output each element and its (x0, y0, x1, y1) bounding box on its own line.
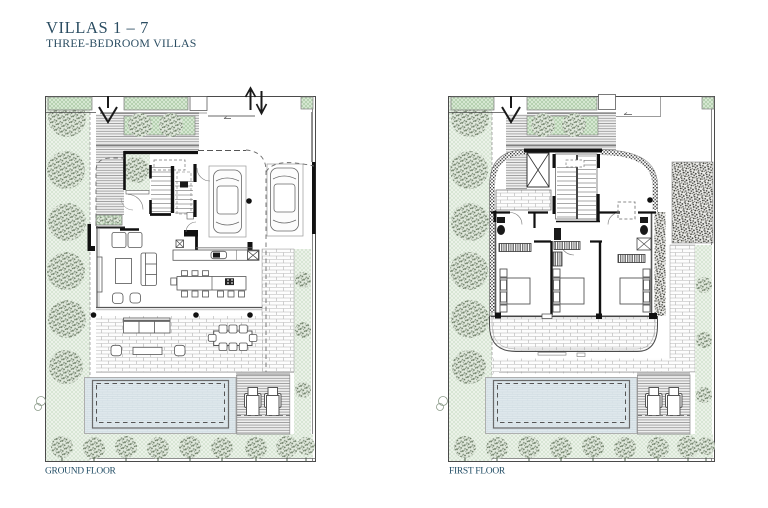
svg-text:VILLAS 1 – 7: VILLAS 1 – 7 (46, 18, 149, 37)
svg-text:FIRST FLOOR: FIRST FLOOR (449, 467, 506, 477)
svg-text:THREE-BEDROOM VILLAS: THREE-BEDROOM VILLAS (46, 36, 197, 50)
svg-text:GROUND FLOOR: GROUND FLOOR (45, 467, 117, 477)
